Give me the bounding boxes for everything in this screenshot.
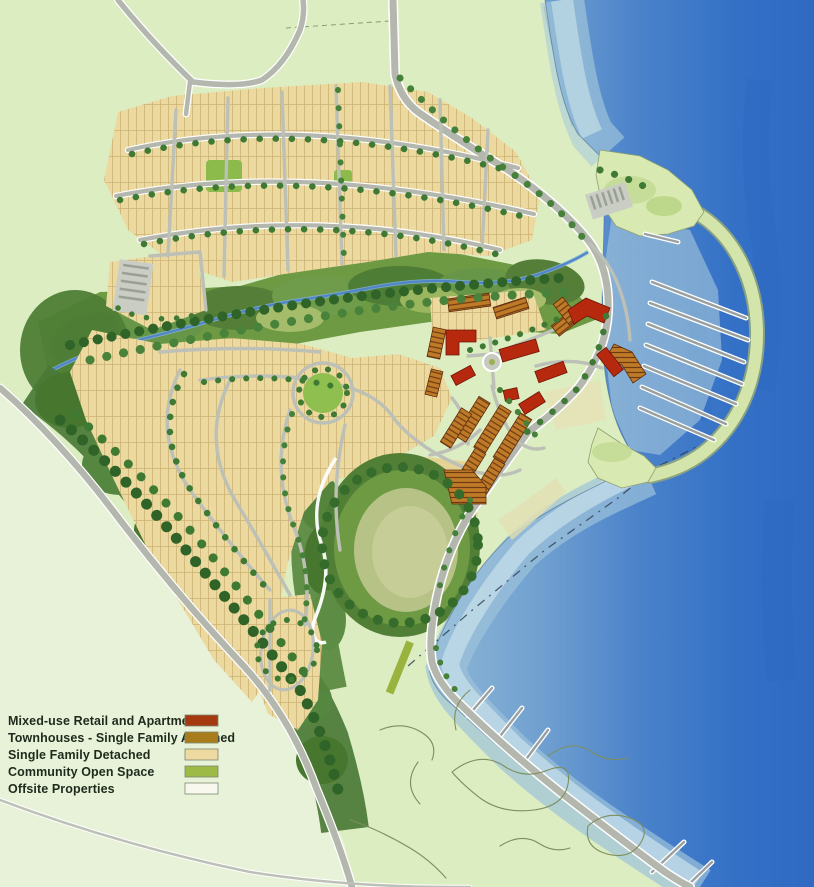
- legend-label: Offsite Properties: [8, 782, 115, 796]
- legend-row-mixed-use: Mixed-use Retail and Apartments: [8, 712, 238, 729]
- legend-swatch-townhouses: [184, 731, 220, 744]
- legend-swatch-mixed-use: [184, 714, 220, 727]
- circle-park: [303, 373, 343, 413]
- legend-swatch-open-space: [184, 765, 220, 778]
- legend: Mixed-use Retail and Apartments Townhous…: [8, 712, 238, 797]
- legend-swatch-single-family: [184, 748, 220, 761]
- legend-row-offsite: Offsite Properties: [8, 780, 238, 797]
- master-plan-map: Mixed-use Retail and Apartments Townhous…: [0, 0, 814, 887]
- legend-label: Community Open Space: [8, 765, 154, 779]
- legend-swatch-offsite: [184, 782, 220, 795]
- legend-label: Mixed-use Retail and Apartments: [8, 714, 208, 728]
- legend-row-single-family: Single Family Detached: [8, 746, 238, 763]
- park-square: [206, 160, 242, 192]
- legend-row-open-space: Community Open Space: [8, 763, 238, 780]
- legend-label: Single Family Detached: [8, 748, 151, 762]
- legend-row-townhouses: Townhouses - Single Family Attached: [8, 729, 238, 746]
